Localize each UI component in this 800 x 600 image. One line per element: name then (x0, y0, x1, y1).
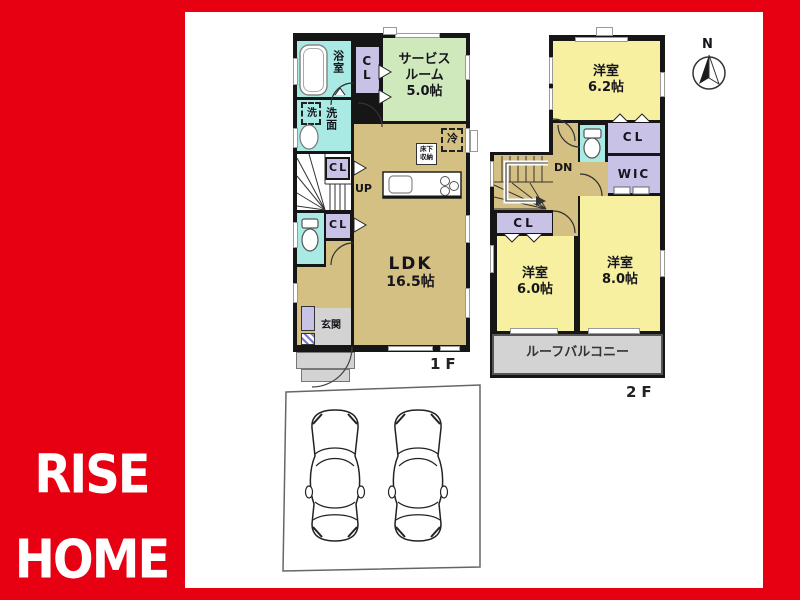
washroom-label: 洗面 (324, 107, 337, 131)
closet-mid-label: CL (329, 162, 348, 175)
closet-low-label: CL (329, 219, 348, 232)
flyer-canvas: RISE HOME 冷 床下 収納 洗 (0, 0, 800, 600)
bedroom-62-label-1: 洋室 (575, 65, 637, 80)
room-toilet-2f (580, 125, 605, 162)
laundry-label: 洗 (307, 108, 317, 120)
window (293, 128, 298, 148)
stairs-up-label: UP (355, 183, 372, 196)
window (395, 33, 440, 38)
room-ldk (354, 124, 466, 345)
window (293, 283, 298, 303)
closet-2f-label: CL (608, 131, 660, 145)
kitchen-door-step (470, 130, 478, 152)
hall-2f (553, 123, 578, 236)
hall-2f-east (578, 162, 608, 196)
floorplan-1f: 冷 床下 収納 洗 (293, 33, 470, 352)
window (490, 245, 494, 273)
brand-logo: RISE HOME (0, 432, 183, 600)
bathroom-label: 浴室 (331, 50, 344, 74)
closet-top-label: CL (359, 54, 373, 82)
balcony-label: ルーフバルコニー (492, 346, 663, 361)
window (588, 328, 640, 334)
shoe-cabinet-lower (301, 333, 315, 345)
porch-step-1 (296, 352, 355, 369)
service-room-label-2: ルーム (385, 69, 464, 84)
hall-1f-upper (326, 241, 351, 267)
ldk-label-1: LDK (373, 255, 448, 275)
laundry-box: 洗 (301, 102, 321, 125)
compass-north-label: N (702, 38, 713, 53)
window (388, 346, 433, 351)
vent-1f (383, 27, 397, 35)
shoe-cabinet (301, 306, 315, 331)
bedroom-60-label-1: 洋室 (504, 267, 566, 282)
window (510, 328, 558, 334)
floorplan-2f: 洋室 6.2帖 DN CL WIC CL 洋室 6.0帖 洋室 8.0帖 ルーフ… (490, 35, 665, 378)
bedroom-60-label-2: 6.0帖 (504, 283, 566, 298)
vent-2f (596, 27, 613, 36)
service-room-label-1: サービス (385, 53, 464, 68)
window (465, 215, 470, 243)
window (293, 222, 298, 248)
porch-step-2 (301, 369, 350, 382)
underfloor-label-2: 収納 (417, 154, 436, 161)
window (660, 72, 665, 97)
stairs-dn-label: DN (554, 162, 572, 175)
window (465, 55, 470, 80)
refrigerator-box: 冷 (441, 128, 463, 152)
ldk-label-2: 16.5帖 (373, 274, 448, 290)
window (490, 161, 494, 187)
window (660, 250, 665, 277)
floor-label-2f: 2F (626, 383, 657, 401)
refrigerator-label: 冷 (447, 133, 458, 146)
service-room-label-3: 5.0帖 (385, 85, 464, 100)
window (465, 288, 470, 318)
bedroom-80-label-1: 洋室 (589, 257, 651, 272)
room-stairs-2f (494, 155, 553, 210)
window (549, 57, 553, 84)
window (293, 58, 298, 85)
plan-cutout (490, 35, 549, 152)
room-toilet-1f (297, 213, 324, 264)
entrance-label: 玄関 (321, 320, 341, 332)
floor-label-1f: 1F (430, 355, 461, 373)
window (575, 37, 628, 42)
wic-label: WIC (608, 168, 660, 182)
floorplan-sheet (185, 12, 763, 588)
closet-2f-low-label: CL (497, 217, 552, 231)
bedroom-80-label-2: 8.0帖 (589, 273, 651, 288)
brand-line-1: RISE (0, 432, 183, 517)
window (440, 346, 460, 351)
bedroom-62-label-2: 6.2帖 (575, 81, 637, 96)
underfloor-storage: 床下 収納 (416, 143, 437, 165)
brand-line-2: HOME (0, 517, 183, 600)
window (549, 88, 553, 110)
